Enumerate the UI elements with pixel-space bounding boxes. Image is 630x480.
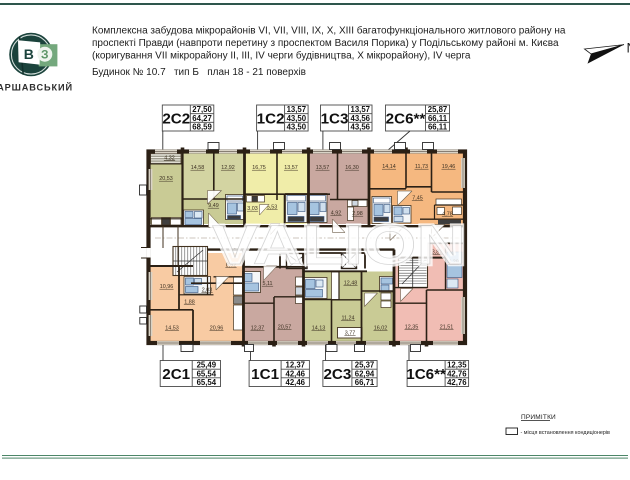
svg-text:65,54: 65,54 (197, 378, 217, 387)
svg-text:Комплексна забудова мікрорайон: Комплексна забудова мікрорайонів VI, VII… (92, 25, 566, 37)
svg-text:68,59: 68,59 (192, 122, 212, 131)
svg-text:ПРИМІТКИ: ПРИМІТКИ (521, 414, 556, 421)
svg-text:- місця встановлення кондиціон: - місця встановлення кондиціонерів (521, 430, 611, 436)
svg-text:66,11: 66,11 (428, 122, 448, 131)
svg-text:65,54: 65,54 (197, 369, 217, 378)
svg-text:42,46: 42,46 (285, 378, 305, 387)
svg-text:12,37: 12,37 (285, 361, 305, 370)
svg-text:2С1: 2С1 (162, 366, 190, 383)
svg-text:1С1: 1С1 (251, 366, 279, 383)
svg-text:66,11: 66,11 (428, 114, 448, 123)
svg-text:Будинок № 10.7 тип Б план: Будинок № 10.7 тип Б план 18 - 21 поверх… (92, 67, 306, 78)
svg-text:43,50: 43,50 (287, 114, 307, 123)
svg-text:(коригування VII мікрорайону I: (коригування VII мікрорайону II, III, IV… (92, 50, 471, 62)
svg-text:62,94: 62,94 (355, 369, 375, 378)
svg-text:2С6**: 2С6** (386, 111, 426, 128)
svg-text:1С6**: 1С6** (406, 366, 446, 383)
svg-text:42,76: 42,76 (447, 369, 467, 378)
svg-text:проспекті Правди (навпроти пер: проспекті Правди (навпроти перетину з пр… (92, 38, 559, 49)
svg-text:25,87: 25,87 (428, 105, 448, 114)
svg-text:1С3: 1С3 (321, 111, 349, 128)
svg-text:2С2: 2С2 (162, 111, 190, 128)
svg-text:25,37: 25,37 (355, 361, 375, 370)
svg-text:13,57: 13,57 (350, 105, 370, 114)
svg-text:43,56: 43,56 (350, 114, 370, 123)
svg-text:В: В (24, 46, 34, 62)
svg-text:27,50: 27,50 (192, 105, 212, 114)
svg-text:2С3: 2С3 (323, 366, 351, 383)
svg-text:42,46: 42,46 (285, 369, 305, 378)
svg-text:42,76: 42,76 (447, 378, 467, 387)
svg-text:12,35: 12,35 (447, 361, 467, 370)
svg-text:64,27: 64,27 (192, 114, 212, 123)
svg-text:З: З (41, 48, 49, 62)
svg-text:ВАРШАВСЬКИЙ: ВАРШАВСЬКИЙ (0, 82, 73, 93)
svg-text:43,56: 43,56 (350, 122, 370, 131)
svg-text:N: N (627, 41, 630, 56)
svg-text:VALION: VALION (212, 213, 466, 276)
svg-text:25,49: 25,49 (197, 361, 217, 370)
svg-text:66,71: 66,71 (355, 378, 375, 387)
svg-text:13,57: 13,57 (287, 105, 307, 114)
svg-text:43,50: 43,50 (287, 122, 307, 131)
svg-text:1С2: 1С2 (257, 111, 285, 128)
